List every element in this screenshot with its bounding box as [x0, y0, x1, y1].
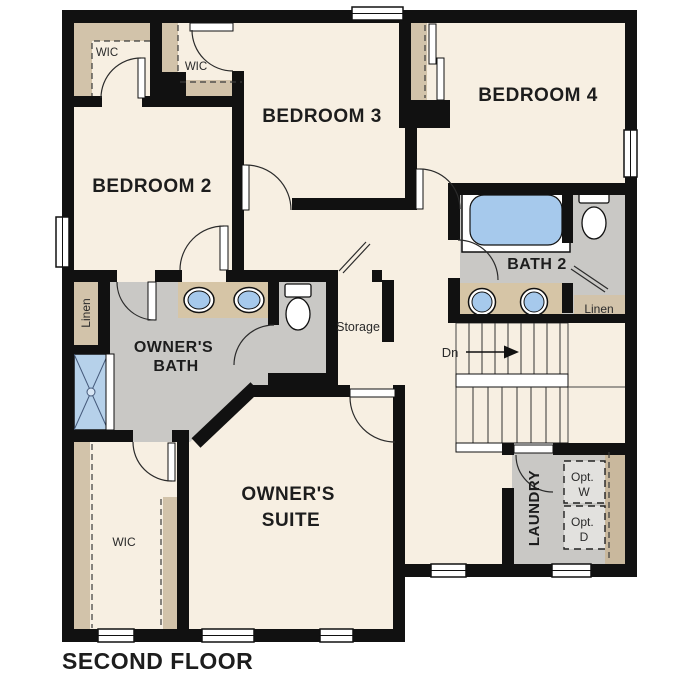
window [202, 629, 254, 642]
label-bedroom2: BEDROOM 2 [92, 176, 212, 197]
sink-icon [234, 288, 264, 313]
label-owners-bath-line2: BATH [153, 358, 198, 375]
label-opt-washer-line2: W [578, 485, 590, 499]
bathtub-icon [462, 188, 570, 252]
window [320, 629, 353, 642]
label-storage: Storage [336, 320, 380, 334]
sink-icon [469, 289, 496, 316]
label-bedroom3: BEDROOM 3 [262, 106, 382, 127]
label-owners-bath-line1: OWNER'S [134, 339, 213, 356]
label-linen-owners: Linen [79, 298, 93, 327]
label-opt-dryer-line2: D [580, 530, 589, 544]
label-opt-dryer-line1: Opt. [571, 515, 594, 529]
toilet-icon [579, 190, 609, 239]
wic2-shelf-left [162, 23, 178, 72]
label-laundry: LAUNDRY [526, 470, 543, 546]
label-wic-owners: WIC [112, 535, 136, 549]
label-wic-bedroom3: WIC [185, 61, 207, 73]
owners-wic-shelf-right [163, 497, 177, 629]
window [624, 130, 637, 177]
label-stairs-down: Dn [442, 345, 459, 360]
shower-icon [74, 354, 114, 430]
label-bedroom4: BEDROOM 4 [478, 85, 598, 106]
window [552, 564, 591, 577]
label-owners-suite-line1: OWNER'S [241, 484, 335, 505]
label-bath2: BATH 2 [507, 256, 567, 273]
owners-wic-shelf-left [74, 442, 90, 629]
window [352, 7, 403, 20]
label-wic-bedroom2: WIC [96, 47, 118, 59]
page-title: SECOND FLOOR [62, 648, 253, 674]
wic1-shelf-left [74, 23, 92, 98]
laundry-side-counter [605, 447, 625, 565]
label-owners-suite-line2: SUITE [262, 510, 320, 531]
bypass-door-panel [437, 58, 444, 100]
toilet-icon [285, 284, 311, 330]
bypass-door-panel [429, 24, 436, 64]
stair-landing [456, 374, 568, 387]
label-linen-bath2: Linen [584, 302, 613, 316]
floor-plan-page: WIC WIC BEDROOM 2 BEDROOM 3 BEDROOM 4 BA… [0, 0, 687, 687]
sink-icon [184, 288, 214, 313]
sink-icon [521, 289, 548, 316]
window [431, 564, 466, 577]
window [56, 217, 69, 267]
shower-glass [106, 354, 114, 430]
label-opt-washer-line1: Opt. [571, 470, 594, 484]
floor-plan-drawing: WIC WIC BEDROOM 2 BEDROOM 3 BEDROOM 4 BA… [0, 0, 687, 687]
window [98, 629, 134, 642]
